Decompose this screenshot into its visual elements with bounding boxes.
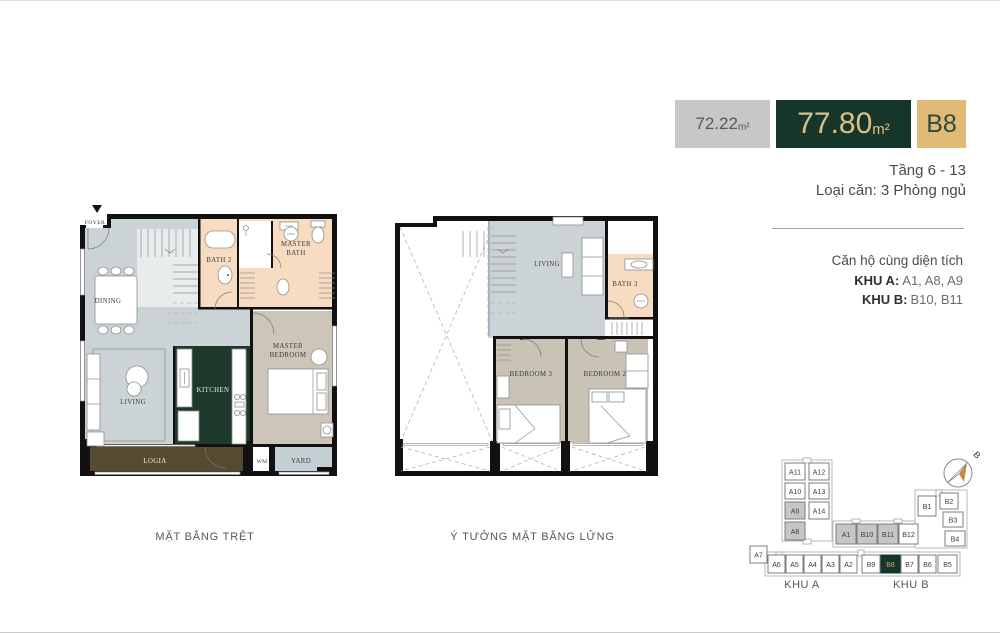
keyplan-unit-a1[interactable]: A1 — [836, 524, 856, 544]
svg-text:B3: B3 — [949, 518, 958, 525]
svg-text:B10: B10 — [861, 532, 874, 539]
label-bath3: BATH 3 — [612, 281, 637, 288]
svg-text:B9: B9 — [867, 562, 876, 569]
svg-text:A4: A4 — [808, 562, 817, 569]
keyplan-unit-a11[interactable]: A11 — [785, 463, 805, 480]
svg-text:B5: B5 — [943, 562, 952, 569]
unit-code-tab[interactable]: B8 — [917, 100, 966, 148]
svg-text:B4: B4 — [951, 537, 960, 544]
svg-text:A7: A7 — [754, 553, 763, 560]
label-living: LIVING — [120, 399, 146, 406]
label-master-bath-2: BATH — [286, 250, 305, 257]
svg-text:A3: A3 — [826, 562, 835, 569]
keyplan-unit-b8[interactable]: B8 — [881, 555, 900, 573]
svg-text:A13: A13 — [813, 489, 826, 496]
svg-text:B1: B1 — [923, 504, 932, 511]
keyplan-unit-b6[interactable]: B6 — [919, 555, 936, 573]
area-tab-other-unit[interactable]: 72.22m² — [675, 100, 770, 148]
keyplan-unit-b1[interactable]: B1 — [918, 496, 936, 516]
keyplan-unit-b12[interactable]: B12 — [899, 524, 918, 544]
label-yard: YARD — [291, 458, 311, 465]
label-wm: WM — [256, 459, 267, 465]
svg-text:B11: B11 — [882, 532, 894, 539]
same-area-row-khu-a: KHU A:A1, A8, A9 — [854, 273, 963, 288]
keyplan-unit-b10[interactable]: B10 — [857, 524, 877, 544]
ground-plan-caption: MẶT BẰNG TRỆT — [55, 531, 355, 543]
svg-text:A10: A10 — [789, 489, 802, 496]
keyplan-unit-b5[interactable]: B5 — [938, 555, 957, 573]
label-master-bath-1: MASTER — [281, 241, 311, 248]
svg-text:A9: A9 — [791, 509, 800, 516]
svg-text:B8: B8 — [886, 562, 895, 569]
keyplan-unit-a12[interactable]: A12 — [809, 463, 829, 480]
mezzanine-plan-caption: Ý TƯỞNG MẶT BẰNG LỬNG — [385, 531, 680, 543]
zone-label-khu-b: KHU B — [893, 579, 929, 591]
keyplan-unit-b3[interactable]: B3 — [943, 512, 963, 527]
keyplan-unit-a3[interactable]: A3 — [822, 555, 839, 573]
area-tab-current-unit[interactable]: 77.80m² — [776, 100, 911, 148]
keyplan-unit-b4[interactable]: B4 — [945, 531, 965, 546]
keyplan-unit-b9[interactable]: B9 — [862, 555, 880, 573]
ground-floor-plan: FOYER DINING LIVING KITCHEN BATH 2 MASTE… — [55, 191, 355, 491]
keyplan-unit-a4[interactable]: A4 — [804, 555, 821, 573]
area-main-unit-suffix: m² — [872, 121, 890, 138]
mezzanine-plan: LIVING BATH 3 BEDROOM 3 BEDROOM 2 — [385, 191, 680, 491]
keyplan-unit-a14[interactable]: A14 — [809, 502, 829, 519]
keyplan-unit-a2[interactable]: A2 — [840, 555, 857, 573]
svg-text:A11: A11 — [789, 470, 801, 477]
area-main-value: 77.80 — [797, 107, 872, 141]
label-kitchen: KITCHEN — [197, 387, 230, 394]
unit-code: B8 — [926, 110, 957, 139]
compass-north-label: B — [971, 449, 982, 460]
keyplan-unit-a13[interactable]: A13 — [809, 483, 829, 499]
keyplan-unit-a10[interactable]: A10 — [785, 483, 805, 499]
svg-text:B7: B7 — [905, 562, 914, 569]
same-area-title: Căn hộ cùng diện tích — [832, 253, 963, 268]
label-dining: DINING — [95, 298, 122, 305]
section-divider — [772, 228, 964, 229]
svg-text:A14: A14 — [813, 509, 826, 516]
keyplan: A11 A10 A9 A8 A12 A13 A14 A1 B10 B11 B12… — [740, 446, 990, 596]
keyplan-unit-a9[interactable]: A9 — [785, 502, 805, 519]
label-bedroom3: BEDROOM 3 — [510, 371, 553, 378]
area-other-value: 72.22 — [695, 114, 738, 134]
keyplan-unit-b7[interactable]: B7 — [901, 555, 918, 573]
svg-text:B6: B6 — [923, 562, 932, 569]
label-master-bedroom-2: BEDROOM — [270, 352, 307, 359]
keyplan-unit-a5[interactable]: A5 — [786, 555, 803, 573]
label-bath2: BATH 2 — [206, 257, 231, 264]
floorplan-sheet: 72.22m² 77.80m² B8 Tầng 6 - 13 Loại căn:… — [0, 0, 1000, 633]
label-master-bedroom-1: MASTER — [273, 343, 303, 350]
keyplan-unit-a8[interactable]: A8 — [785, 522, 805, 540]
keyplan-unit-a7[interactable]: A7 — [750, 546, 767, 563]
label-bedroom2: BEDROOM 2 — [584, 371, 627, 378]
entry-arrow-icon — [92, 205, 102, 213]
compass-icon: B — [944, 449, 983, 487]
svg-text:A8: A8 — [791, 529, 800, 536]
closet-hatch — [612, 322, 642, 335]
keyplan-unit-b11[interactable]: B11 — [878, 524, 898, 544]
mezz-balcony-voids — [401, 444, 645, 472]
area-other-unit-suffix: m² — [738, 122, 750, 133]
label-foyer: FOYER — [85, 220, 105, 226]
svg-text:A1: A1 — [842, 532, 851, 539]
label-logia: LOGIA — [143, 458, 166, 465]
keyplan-unit-a6[interactable]: A6 — [768, 555, 785, 573]
zone-label-khu-a: KHU A — [784, 579, 820, 591]
svg-text:A5: A5 — [790, 562, 799, 569]
void-open-below — [400, 227, 493, 443]
khu-b-units: B10, B11 — [910, 292, 963, 307]
svg-text:B2: B2 — [945, 499, 954, 506]
same-area-row-khu-b: KHU B:B10, B11 — [862, 292, 963, 307]
keyplan-unit-b2[interactable]: B2 — [940, 493, 958, 509]
khu-a-units: A1, A8, A9 — [902, 273, 963, 288]
svg-text:A12: A12 — [813, 470, 826, 477]
svg-text:A2: A2 — [844, 562, 853, 569]
khu-a-label: KHU A: — [854, 273, 899, 288]
floor-range: Tầng 6 - 13 — [889, 162, 966, 179]
unit-type: Loại căn: 3 Phòng ngủ — [816, 182, 966, 199]
khu-b-label: KHU B: — [862, 292, 908, 307]
svg-text:B12: B12 — [902, 532, 915, 539]
svg-text:A6: A6 — [772, 562, 781, 569]
label-mezz-living: LIVING — [534, 261, 560, 268]
